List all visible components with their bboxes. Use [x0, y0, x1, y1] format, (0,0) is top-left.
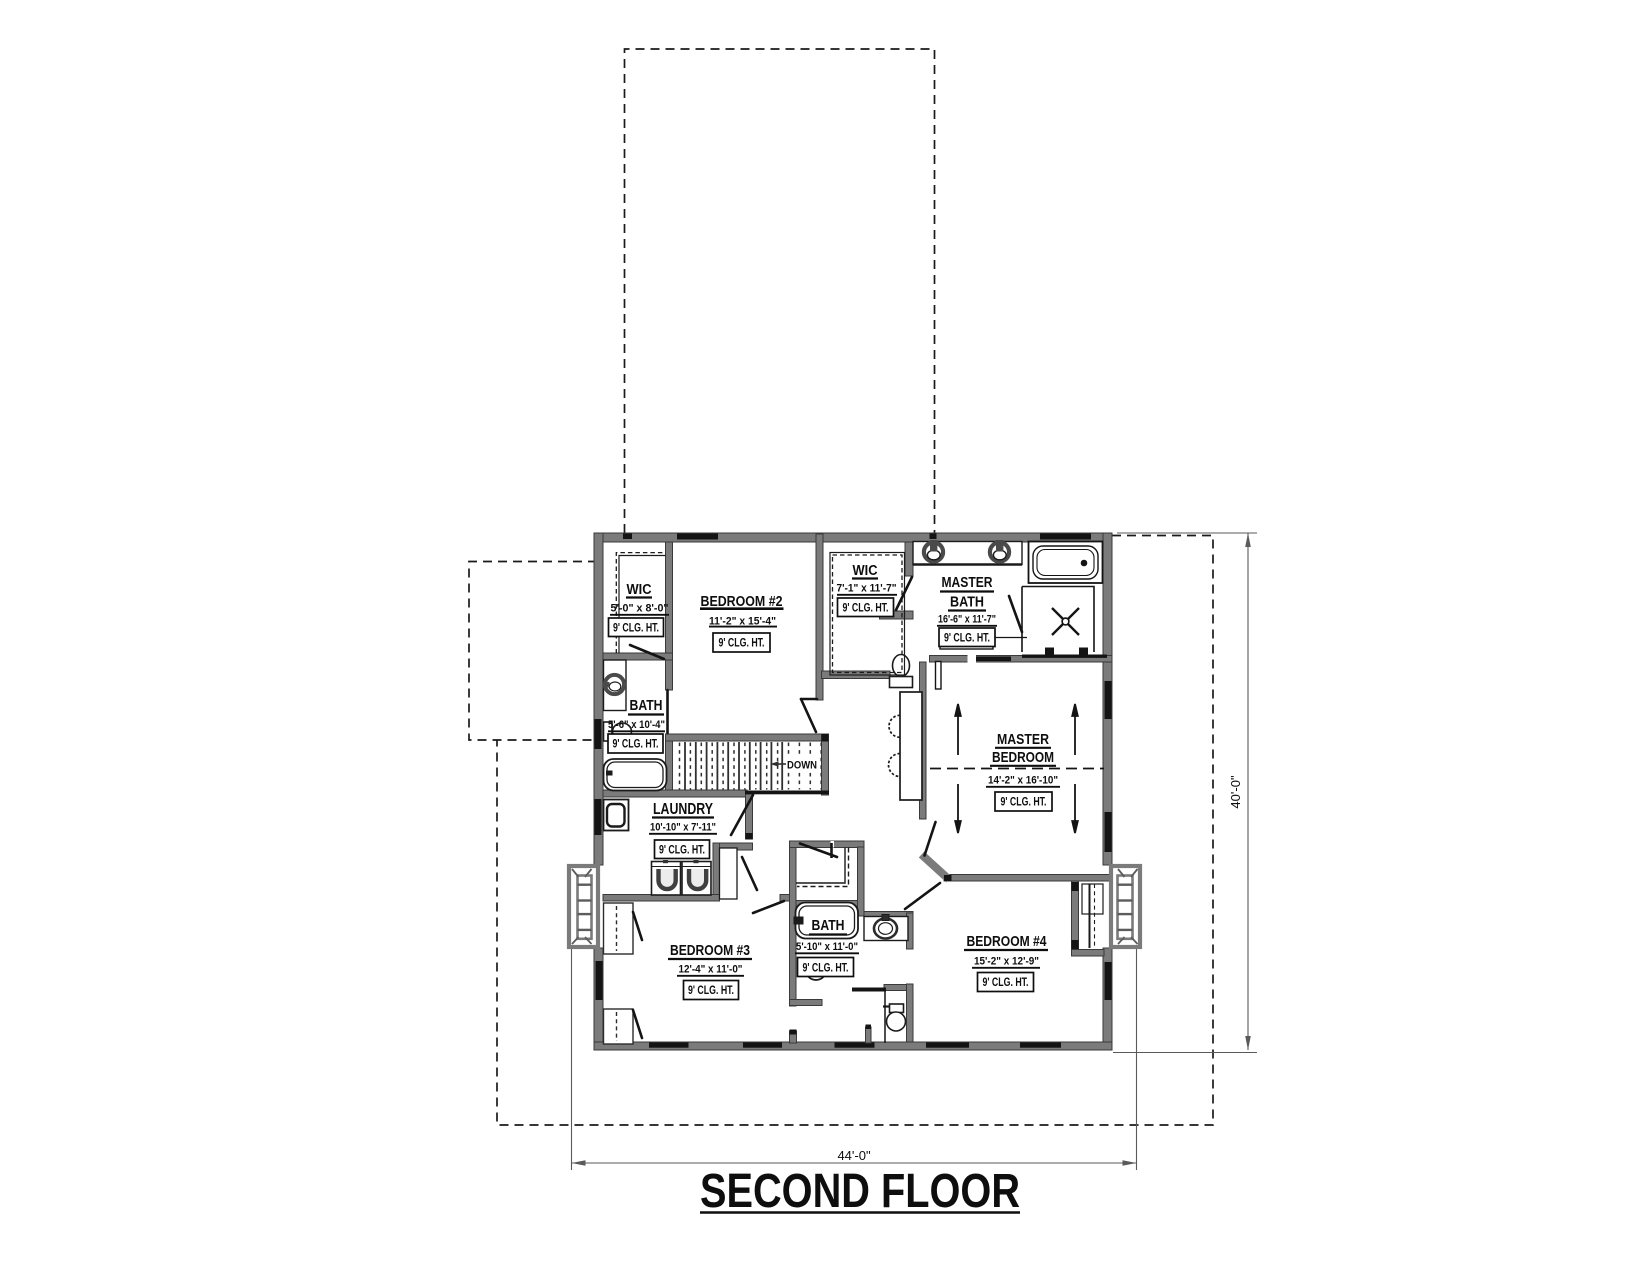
- svg-text:9' CLG. HT.: 9' CLG. HT.: [659, 845, 705, 857]
- svg-text:LAUNDRY: LAUNDRY: [653, 801, 714, 818]
- svg-text:44'-0": 44'-0": [837, 1148, 871, 1163]
- svg-text:DOWN: DOWN: [787, 760, 817, 772]
- svg-text:5'-10" x 11'-0": 5'-10" x 11'-0": [796, 941, 858, 953]
- svg-text:BEDROOM #4: BEDROOM #4: [967, 933, 1048, 950]
- svg-text:9' CLG. HT.: 9' CLG. HT.: [719, 638, 765, 650]
- svg-text:SECOND FLOOR: SECOND FLOOR: [700, 1165, 1020, 1218]
- svg-text:15'-2" x 12'-9": 15'-2" x 12'-9": [974, 956, 1039, 968]
- svg-text:7'-1" x 11'-7": 7'-1" x 11'-7": [837, 583, 897, 595]
- svg-text:10'-10" x 7'-11": 10'-10" x 7'-11": [650, 822, 716, 834]
- svg-text:MASTER: MASTER: [942, 574, 993, 591]
- svg-text:BATH: BATH: [950, 594, 984, 611]
- svg-text:WIC: WIC: [853, 563, 878, 579]
- svg-text:MASTER: MASTER: [997, 731, 1049, 748]
- svg-text:BATH: BATH: [630, 698, 663, 714]
- svg-text:14'-2" x 16'-10": 14'-2" x 16'-10": [988, 775, 1058, 787]
- svg-text:5'-6" x 10'-4": 5'-6" x 10'-4": [608, 719, 665, 731]
- svg-text:9' CLG. HT.: 9' CLG. HT.: [613, 739, 659, 751]
- svg-text:9' CLG. HT.: 9' CLG. HT.: [1001, 797, 1047, 809]
- svg-text:9' CLG. HT.: 9' CLG. HT.: [803, 963, 849, 975]
- svg-text:9' CLG. HT.: 9' CLG. HT.: [944, 633, 990, 645]
- svg-text:BATH: BATH: [812, 918, 845, 934]
- svg-text:9' CLG. HT.: 9' CLG. HT.: [613, 623, 659, 635]
- svg-text:12'-4" x 11'-0": 12'-4" x 11'-0": [679, 964, 743, 976]
- svg-text:40'-0": 40'-0": [1228, 775, 1243, 809]
- svg-text:BEDROOM: BEDROOM: [992, 749, 1054, 766]
- svg-text:WIC: WIC: [627, 582, 652, 598]
- svg-text:BEDROOM #3: BEDROOM #3: [670, 942, 750, 959]
- svg-text:9' CLG. HT.: 9' CLG. HT.: [843, 603, 889, 615]
- svg-text:5'-0" x 8'-0": 5'-0" x 8'-0": [611, 603, 669, 615]
- svg-text:9' CLG. HT.: 9' CLG. HT.: [688, 985, 734, 997]
- svg-text:9' CLG. HT.: 9' CLG. HT.: [983, 977, 1029, 989]
- svg-text:16'-6" x 11'-7": 16'-6" x 11'-7": [938, 614, 996, 626]
